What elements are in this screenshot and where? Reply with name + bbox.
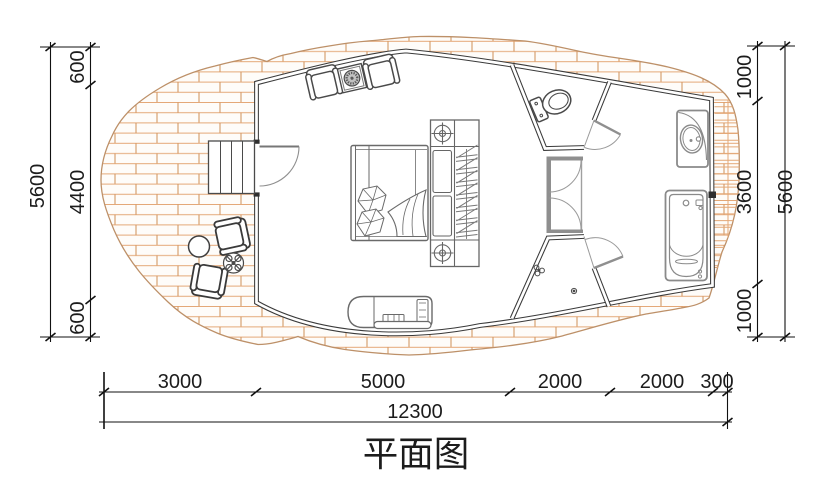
svg-text:12300: 12300	[387, 401, 443, 423]
svg-text:1000: 1000	[734, 55, 756, 100]
svg-text:5000: 5000	[361, 371, 406, 393]
svg-text:600: 600	[67, 50, 89, 83]
svg-text:5600: 5600	[27, 164, 49, 209]
svg-text:2000: 2000	[640, 371, 685, 393]
svg-text:300: 300	[700, 371, 733, 393]
svg-text:600: 600	[67, 301, 89, 334]
svg-text:3600: 3600	[734, 170, 756, 215]
svg-text:1000: 1000	[734, 289, 756, 334]
svg-text:3000: 3000	[158, 371, 203, 393]
svg-text:2000: 2000	[538, 371, 583, 393]
svg-text:5600: 5600	[775, 170, 797, 215]
svg-text:4400: 4400	[67, 170, 89, 215]
svg-text:平面图: 平面图	[363, 434, 470, 474]
